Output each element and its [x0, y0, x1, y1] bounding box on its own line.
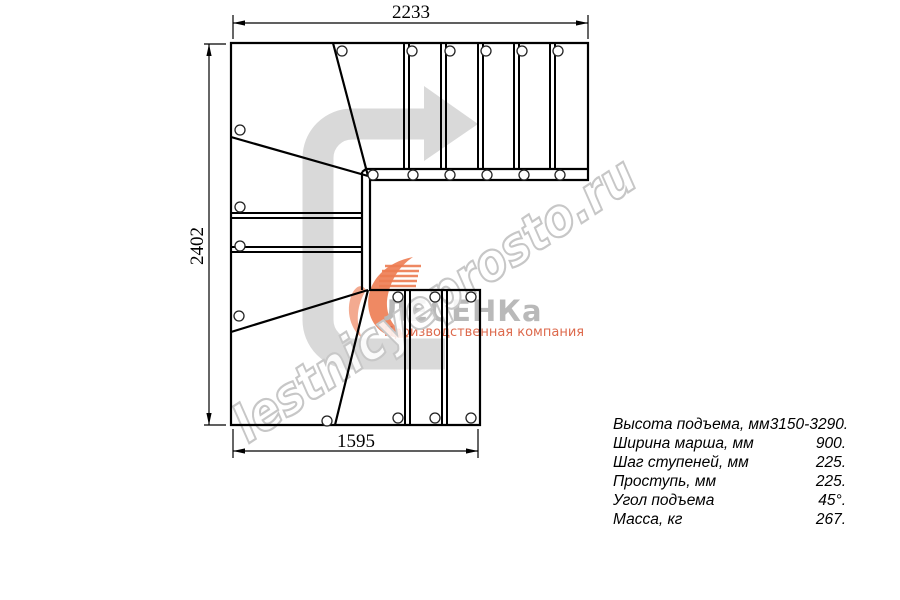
spec-row-height: Высота подъема, мм 3150-3290. — [613, 416, 846, 435]
spec-value: 900. — [816, 435, 846, 454]
spec-label: Проступь, мм — [613, 473, 716, 492]
spec-value: 3150-3290. — [770, 416, 848, 435]
staircase-drawing-page: ЛЕСЕНКа Производственная компания lestni… — [0, 0, 900, 600]
spec-value: 225. — [816, 454, 846, 473]
corner-stringer-line — [362, 169, 366, 290]
spec-label: Высота подъема, мм — [613, 416, 770, 435]
spec-label: Шаг ступеней, мм — [613, 454, 749, 473]
spec-label: Угол подъема — [613, 492, 714, 511]
spec-row-mass: Масса, кг 267. — [613, 511, 846, 530]
direction-arrow-head — [424, 86, 478, 161]
spec-value: 267. — [816, 511, 846, 530]
spec-label: Масса, кг — [613, 511, 682, 530]
dim-top-label: 2233 — [392, 2, 430, 23]
spec-row-march-width: Ширина марша, мм 900. — [613, 435, 846, 454]
spec-value: 225. — [816, 473, 846, 492]
dim-bottom-label: 1595 — [337, 431, 375, 452]
spec-row-rise-angle: Угол подъема 45°. — [613, 492, 846, 511]
left-flight-treads — [231, 213, 362, 252]
spec-label: Ширина марша, мм — [613, 435, 754, 454]
dim-left-label: 2402 — [187, 227, 208, 265]
spec-row-tread-depth: Проступь, мм 225. — [613, 473, 846, 492]
spec-row-step-pitch: Шаг ступеней, мм 225. — [613, 454, 846, 473]
spec-value: 45°. — [818, 492, 846, 511]
spec-list: Высота подъема, мм 3150-3290. Ширина мар… — [613, 416, 846, 529]
